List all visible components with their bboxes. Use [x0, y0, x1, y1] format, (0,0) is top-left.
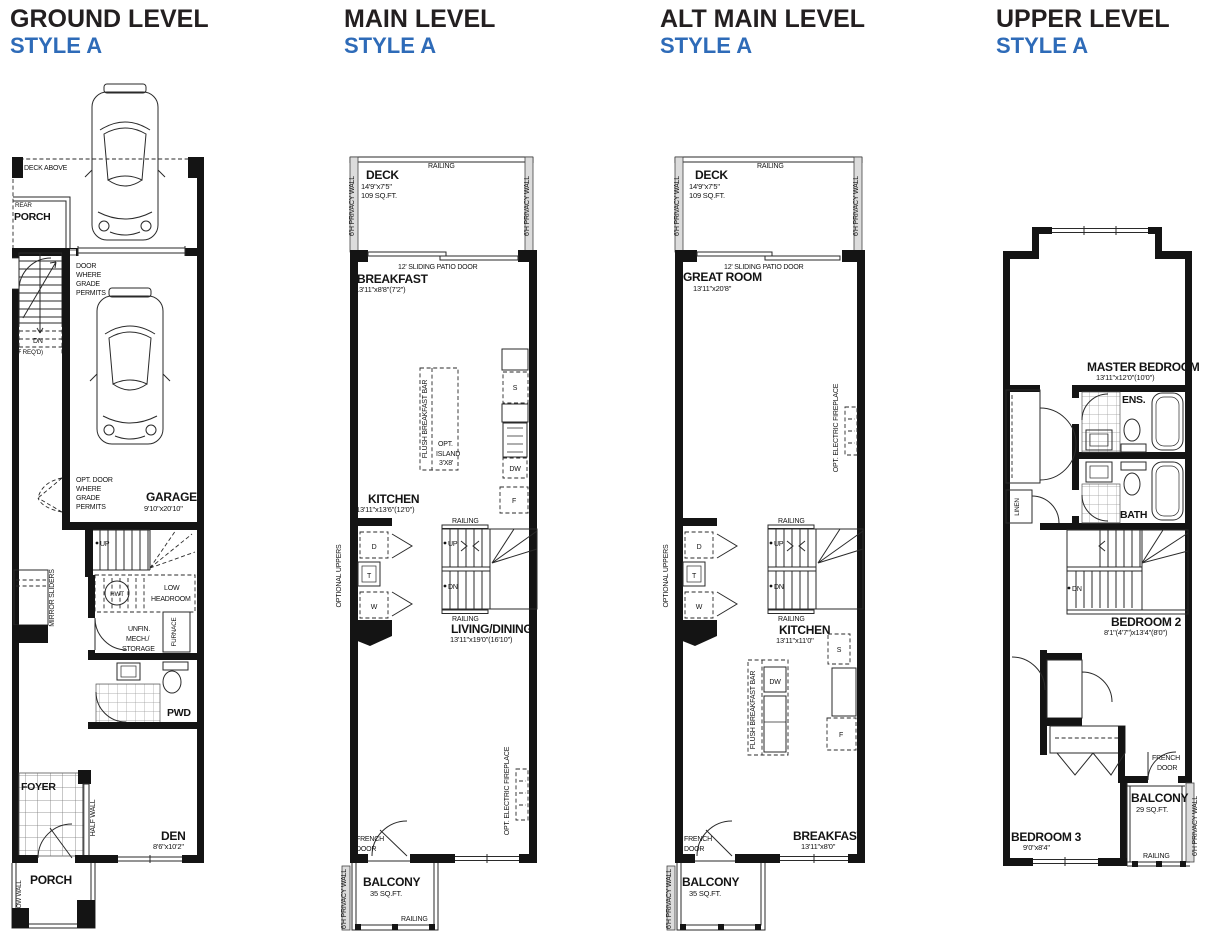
- label-opt-island: ISLAND: [436, 451, 460, 458]
- label-pwd: PWD: [167, 707, 191, 719]
- label-unfin: MECH./: [126, 636, 150, 643]
- label-privacy-wall: 6'H PRIVACY WALL: [1192, 796, 1199, 856]
- label-optional-uppers: OPTIONAL UPPERS: [336, 544, 343, 607]
- label-rear-porch: PORCH: [14, 211, 50, 223]
- label-privacy-wall: 6'H PRIVACY WALL: [341, 869, 348, 929]
- label-garage-dim: 9'10"x20'10": [144, 504, 183, 513]
- style-label: STYLE A: [10, 33, 102, 58]
- label-deck-dim: 14'9"x7'5": [689, 182, 720, 191]
- label-privacy-wall: 6'H PRIVACY WALL: [349, 176, 356, 236]
- label-sink: S: [513, 385, 518, 392]
- label-door-grade: WHERE: [76, 272, 102, 279]
- label-dryer: D: [697, 544, 702, 551]
- label-bath: BATH: [1120, 509, 1147, 521]
- label-den: DEN: [161, 829, 185, 843]
- walk-in-closet: [1006, 390, 1076, 483]
- label-rear: REAR: [15, 202, 32, 209]
- label-railing: RAILING: [452, 518, 479, 525]
- label-balcony: BALCONY: [682, 875, 740, 889]
- label-tub: T: [367, 573, 372, 580]
- label-kitchen-dim: 13'11"x11'0": [776, 636, 814, 645]
- label-opt-door: GRADE: [76, 495, 100, 502]
- car-icon: [85, 84, 165, 240]
- label-opt-door: OPT. DOOR: [76, 477, 113, 484]
- label-door: DOOR: [356, 846, 376, 853]
- label-opt-island: 3'X8': [439, 460, 453, 467]
- label-low-wall: LOW WALL: [16, 880, 23, 912]
- label-opt-door: PERMITS: [76, 504, 106, 511]
- label-master-dim: 13'11"x12'0"(10'0"): [1096, 373, 1155, 382]
- label-low-headroom: LOW: [164, 585, 180, 592]
- label-privacy-wall: 6'H PRIVACY WALL: [853, 176, 860, 236]
- page-title: GROUND LEVEL: [10, 5, 209, 33]
- label-patio-door: 12' SLIDING PATIO DOOR: [398, 264, 478, 271]
- label-door-grade: PERMITS: [76, 290, 106, 297]
- label-flush-bar: FLUSH BREAKFAST BAR: [750, 671, 757, 750]
- label-deck-dim: 14'9"x7'5": [361, 182, 392, 191]
- page-title: MAIN LEVEL: [344, 5, 495, 33]
- toilet-icon: [163, 671, 181, 693]
- label-half-wall: HALF WALL: [90, 799, 97, 836]
- label-furnace: FURNACE: [171, 617, 178, 646]
- label-deck: DECK: [695, 168, 728, 182]
- toilet-icon: [1124, 473, 1140, 495]
- label-deck-above: DECK ABOVE: [24, 165, 68, 172]
- label-den-dim: 8'6"x10'2": [153, 842, 184, 851]
- plan-alt-main: RAILING DECK 14'9"x7'5" 109 SQ.FT. 6'H P…: [663, 157, 865, 930]
- label-privacy-wall: 6'H PRIVACY WALL: [666, 869, 673, 929]
- style-label: STYLE A: [660, 33, 752, 58]
- label-bedroom2: BEDROOM 2: [1111, 615, 1182, 629]
- style-label: STYLE A: [996, 33, 1088, 58]
- label-low-headroom: HEADROOM: [151, 596, 191, 603]
- label-living-dim: 13'11"x19'0"(16'10"): [450, 635, 513, 644]
- label-door-grade: GRADE: [76, 281, 100, 288]
- label-railing: RAILING: [778, 518, 805, 525]
- stairs-upper: [1067, 530, 1188, 614]
- label-living: LIVING/DINING: [451, 622, 532, 636]
- label-dn: DN: [1072, 586, 1082, 593]
- label-bedroom3: BEDROOM 3: [1011, 830, 1082, 844]
- label-railing: RAILING: [401, 916, 428, 923]
- label-flush-bar: FLUSH BREAKFAST BAR: [422, 380, 429, 459]
- label-unfin: STORAGE: [122, 646, 155, 653]
- label-dryer: D: [372, 544, 377, 551]
- label-fridge: F: [512, 498, 516, 505]
- stairs-ground-up: [85, 522, 195, 577]
- label-railing: RAILING: [778, 616, 805, 623]
- label-railing: RAILING: [1143, 853, 1170, 860]
- label-privacy-wall: 6'H PRIVACY WALL: [674, 176, 681, 236]
- label-optional-uppers: OPTIONAL UPPERS: [663, 544, 670, 607]
- page-title: ALT MAIN LEVEL: [660, 5, 865, 33]
- optional-fireplace: [845, 407, 857, 455]
- floorplan-sheet: GROUND LEVEL STYLE A MAIN LEVEL STYLE A …: [0, 0, 1208, 942]
- label-breakfast: BREAKFAST: [793, 829, 865, 843]
- label-opt-fireplace: OPT. ELECTRIC FIREPLACE: [504, 746, 511, 835]
- label-french: FRENCH: [356, 836, 384, 843]
- label-deck: DECK: [366, 168, 399, 182]
- label-door: DOOR: [1157, 765, 1177, 772]
- label-sink: S: [837, 647, 842, 654]
- label-balcony-sqft: 35 SQ.FT.: [689, 889, 721, 898]
- label-up: UP: [774, 541, 784, 548]
- label-opt-island: OPT.: [438, 441, 453, 448]
- label-ens: ENS.: [1122, 394, 1146, 406]
- label-deck-sqft: 109 SQ.FT.: [689, 191, 725, 200]
- style-label: STYLE A: [344, 33, 436, 58]
- label-washer: W: [371, 604, 378, 611]
- plan-main: RAILING DECK 14'9"x7'5" 109 SQ.FT. 6'H P…: [336, 157, 537, 930]
- label-privacy-wall: 6'H PRIVACY WALL: [524, 176, 531, 236]
- kitchen-appliances: [500, 349, 528, 513]
- label-dw: DW: [769, 679, 781, 686]
- label-up: UP: [100, 541, 110, 548]
- plan-upper: MASTER BEDROOM 13'11"x12'0"(10'0") ENS.: [1003, 226, 1200, 867]
- label-linen: LINEN: [1014, 498, 1021, 516]
- label-mirror-sliders: MIRROR SLIDERS: [49, 569, 56, 627]
- label-washer: W: [696, 604, 703, 611]
- label-opt-fireplace: OPT. ELECTRIC FIREPLACE: [833, 383, 840, 472]
- label-balcony-sqft: 35 SQ.FT.: [370, 889, 402, 898]
- label-great-room: GREAT ROOM: [683, 270, 762, 284]
- label-french: FRENCH: [1152, 755, 1180, 762]
- label-opt-door: WHERE: [76, 486, 102, 493]
- label-fridge: F: [839, 732, 843, 739]
- label-breakfast-dim: 13'11"x8'0": [801, 842, 836, 851]
- laundry-closet: [350, 518, 412, 646]
- label-dw: DW: [509, 466, 521, 473]
- stairs-alt-main: [768, 525, 863, 614]
- label-deck-sqft: 109 SQ.FT.: [361, 191, 397, 200]
- hall-closets: [1012, 650, 1125, 783]
- label-great-room-dim: 13'11"x20'8": [693, 284, 732, 293]
- label-unfin: UNFIN.: [128, 626, 150, 633]
- toilet-icon: [1124, 419, 1140, 441]
- stairs-main: [442, 525, 537, 614]
- laundry-closet: [675, 518, 737, 646]
- label-kitchen: KITCHEN: [779, 623, 830, 637]
- label-garage: GARAGE: [146, 490, 197, 504]
- label-balcony-sqft: 29 SQ.FT.: [1136, 805, 1168, 814]
- plan-headers: GROUND LEVEL STYLE A MAIN LEVEL STYLE A …: [10, 5, 1170, 58]
- car-icon: [90, 288, 170, 444]
- label-breakfast-dim: 13'11"x8'8"(7'2"): [355, 285, 406, 294]
- plan-ground: DECK ABOVE REAR PORCH DN (IF REQ'D): [12, 84, 204, 928]
- label-kitchen: KITCHEN: [368, 492, 419, 506]
- optional-fireplace: [516, 769, 528, 820]
- label-door-grade: DOOR: [76, 263, 96, 270]
- label-bedroom3-dim: 9'0"x8'4": [1023, 843, 1050, 852]
- label-master: MASTER BEDROOM: [1087, 360, 1200, 374]
- label-breakfast: BREAKFAST: [357, 272, 429, 286]
- label-if-reqd: (IF REQ'D): [14, 349, 43, 356]
- label-tub: T: [692, 573, 697, 580]
- label-french: FRENCH: [684, 836, 712, 843]
- label-dn: DN: [448, 584, 458, 591]
- label-hwt: HWT: [110, 591, 124, 598]
- label-dn: DN: [33, 338, 43, 345]
- label-door: DOOR: [684, 846, 704, 853]
- label-railing: RAILING: [428, 163, 455, 170]
- label-dn: DN: [774, 584, 784, 591]
- label-porch: PORCH: [30, 873, 72, 887]
- label-balcony: BALCONY: [1131, 791, 1189, 805]
- page-title: UPPER LEVEL: [996, 5, 1170, 33]
- label-kitchen-dim: 13'11"x13'6"(12'0"): [356, 505, 415, 514]
- label-bedroom2-dim: 8'1"(4'7")x13'4"(8'0"): [1104, 628, 1168, 637]
- label-foyer: FOYER: [21, 781, 56, 793]
- label-railing: RAILING: [757, 163, 784, 170]
- label-balcony: BALCONY: [363, 875, 421, 889]
- label-up: UP: [448, 541, 458, 548]
